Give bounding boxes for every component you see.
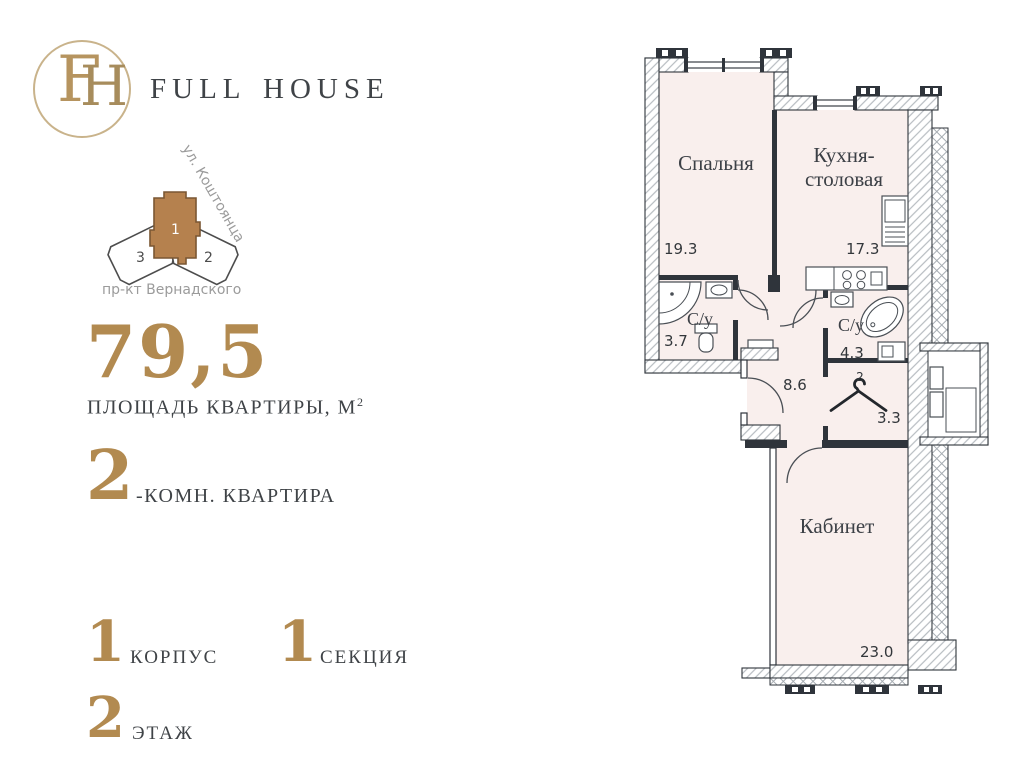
study-area: 23.0 [860,643,893,661]
bathroom2-label: С/у [838,315,864,335]
wardrobe-mark: 2 [856,370,864,384]
bathroom1-area: 3.7 [664,332,688,350]
building-number-label: КОРПУС [130,648,218,667]
site-plan-map: ул. Коштоянца 1 3 2 пр-кт Вернадского [80,142,290,304]
logo-monogram-h-icon: H [80,59,128,114]
brand-wordmark: Full House [150,64,390,106]
section-number-value: 1 [278,614,317,670]
apartment-area-value: 79,5 [86,316,269,388]
street-label-bottom: пр-кт Вернадского [102,282,241,298]
building-2-number: 2 [204,250,213,266]
bedroom-label: Спальня [678,151,754,175]
building-number-value: 1 [86,614,125,670]
window-kitchen [813,96,857,110]
brand-logo: F H [33,40,131,138]
window-bedroom [684,58,764,72]
building-1-number: 1 [171,222,180,238]
kitchen-label-line2: столовая [805,167,883,191]
room-study-floor [770,440,908,668]
wardrobe-area: 3.3 [877,409,901,427]
rooms-count-value: 2 [86,442,133,510]
fridge-icon [882,196,908,246]
hallway-area: 8.6 [783,376,807,394]
area-label-text: ПЛОЩАДЬ КВАРТИРЫ, М [87,397,357,419]
utility-shaft [928,351,980,437]
bathroom2-area: 4.3 [840,344,864,362]
study-label: Кабинет [800,514,875,538]
hall-shelf [748,340,773,348]
floor-number-value: 2 [86,690,125,746]
kitchen-area: 17.3 [846,240,879,258]
sink-icon [706,282,732,298]
kitchen-label-line1: Кухня- [813,143,874,167]
floor-number-label: ЭТАЖ [132,724,194,743]
apartment-area-label: ПЛОЩАДЬ КВАРТИРЫ, М2 [87,396,364,418]
rooms-count-label: -КОМН. КВАРТИРА [136,486,336,506]
building-3-number: 3 [136,250,145,266]
section-number-label: СЕКЦИЯ [320,648,409,667]
bathroom1-label: С/у [687,309,713,329]
bedroom-area: 19.3 [664,240,697,258]
sink2-icon [831,292,853,307]
floor-plan: Спальня 19.3 Кухня- столовая 17.3 С/у 3.… [620,28,1005,763]
washing-machine-icon [878,342,905,361]
stove-icon [806,267,887,290]
room-wardrobe-floor [823,363,908,440]
area-superscript: 2 [357,395,365,409]
